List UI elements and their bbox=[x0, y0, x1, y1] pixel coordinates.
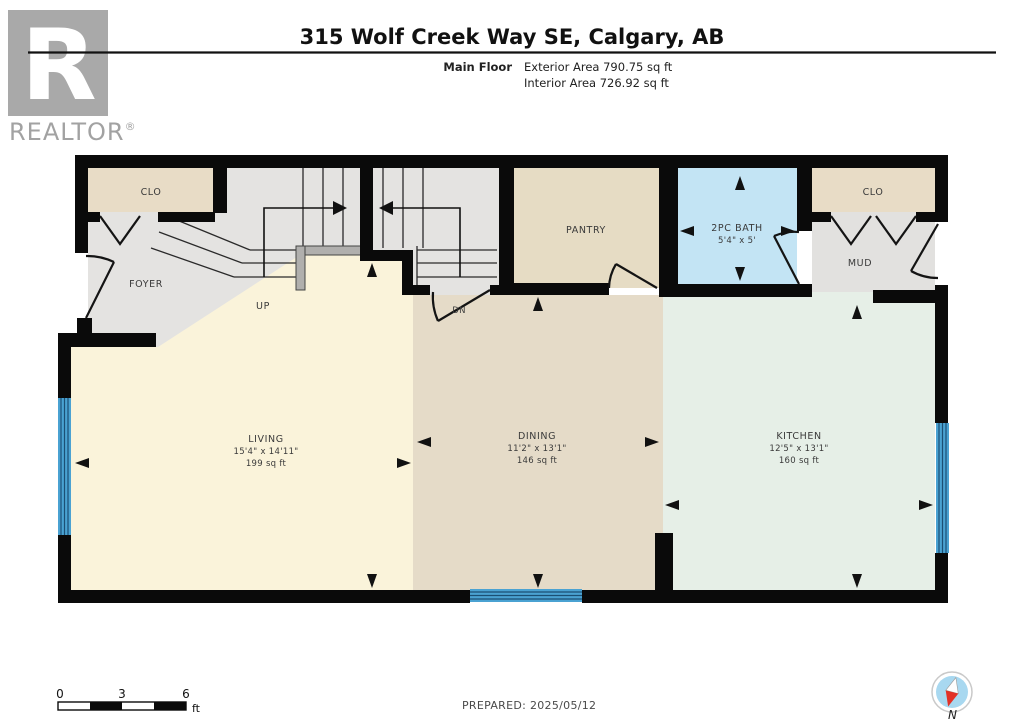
wall-closet-left bbox=[158, 212, 215, 222]
registered-mark: ® bbox=[125, 120, 137, 133]
wall-closet-right-stub-a bbox=[812, 212, 831, 222]
wall-closet-stairs bbox=[213, 155, 227, 213]
scale-segment-dark-2 bbox=[154, 702, 186, 710]
living-window bbox=[58, 398, 71, 535]
living-area: 199 sq ft bbox=[246, 459, 287, 469]
wall-stair-divider bbox=[360, 155, 373, 255]
kitchen-label: KITCHEN bbox=[776, 431, 821, 442]
wall-bath-bottom bbox=[659, 284, 812, 297]
stairs-down-label: DN bbox=[452, 306, 466, 316]
realtor-wordmark: REALTOR® bbox=[9, 118, 137, 146]
wall-pantry-bottom bbox=[499, 283, 609, 295]
prepared-date-label: PREPARED: 2025/05/12 bbox=[462, 699, 596, 712]
realtor-logo: R REALTOR® bbox=[8, 9, 137, 146]
dining-label: DINING bbox=[518, 431, 556, 442]
living-label: LIVING bbox=[248, 434, 283, 445]
floor-label: Main Floor bbox=[443, 60, 512, 74]
wall-pantry-bath bbox=[659, 155, 678, 297]
scale-mid-label: 3 bbox=[118, 687, 126, 701]
foyer-label: FOYER bbox=[129, 279, 163, 290]
bath-label: 2PC BATH bbox=[711, 223, 762, 234]
bath-dims: 5'4" x 5' bbox=[718, 236, 756, 246]
page-title: 315 Wolf Creek Way SE, Calgary, AB bbox=[300, 25, 725, 49]
scale-segment-dark-1 bbox=[90, 702, 122, 710]
closet-right-label: CLO bbox=[863, 187, 884, 198]
mud-floor bbox=[812, 212, 935, 292]
wall-left-lower bbox=[58, 535, 71, 603]
wall-left-jog bbox=[58, 333, 156, 347]
wall-right-upper bbox=[935, 155, 948, 212]
living-dims: 15'4" x 14'11" bbox=[234, 447, 299, 457]
scale-end-label: 6 bbox=[182, 687, 190, 701]
wall-dining-kitchen-stub bbox=[655, 533, 673, 590]
floor-plan-page: R REALTOR® 315 Wolf Creek Way SE, Calgar… bbox=[0, 0, 1024, 723]
wall-bath-right bbox=[797, 155, 812, 231]
compass: N bbox=[932, 672, 972, 722]
wall-closet-left-stub bbox=[88, 212, 100, 222]
kitchen-dims: 12'5" x 13'1" bbox=[769, 444, 828, 454]
scale-bar: 0 3 6 ft bbox=[56, 687, 200, 715]
wall-right-mid bbox=[935, 285, 948, 423]
closet-left-label: CLO bbox=[141, 187, 162, 198]
stairs-up-label: UP bbox=[256, 301, 270, 312]
floor-fills bbox=[60, 168, 935, 590]
wall-stairs-pantry bbox=[499, 155, 514, 295]
wall-left-upper bbox=[75, 155, 88, 253]
scale-start-label: 0 bbox=[56, 687, 64, 701]
dining-window bbox=[470, 589, 582, 602]
pantry-label: PANTRY bbox=[566, 225, 606, 236]
wall-entry-stub bbox=[77, 318, 92, 335]
wall-stair-block bbox=[360, 250, 413, 261]
dining-area: 146 sq ft bbox=[517, 456, 558, 466]
interior-area-label: Interior Area 726.92 sq ft bbox=[524, 76, 669, 90]
wall-closet-right-stub-b bbox=[916, 212, 948, 222]
kitchen-window bbox=[936, 423, 949, 553]
wall-mud-bottom bbox=[873, 290, 948, 303]
wall-left-mid bbox=[58, 347, 71, 398]
wall-bottom-left bbox=[58, 590, 470, 603]
realtor-logo-r-icon: R bbox=[21, 9, 96, 123]
compass-north-label: N bbox=[948, 708, 957, 722]
wall-bottom-right bbox=[582, 590, 948, 603]
scale-unit-label: ft bbox=[192, 702, 201, 715]
wall-stair-bottom-left bbox=[402, 285, 430, 295]
realtor-wordmark-text: REALTOR bbox=[9, 118, 125, 146]
mud-label: MUD bbox=[848, 258, 872, 269]
dining-dims: 11'2" x 13'1" bbox=[507, 444, 566, 454]
kitchen-area: 160 sq ft bbox=[779, 456, 820, 466]
exterior-area-label: Exterior Area 790.75 sq ft bbox=[524, 60, 673, 74]
dining-floor bbox=[413, 295, 663, 590]
